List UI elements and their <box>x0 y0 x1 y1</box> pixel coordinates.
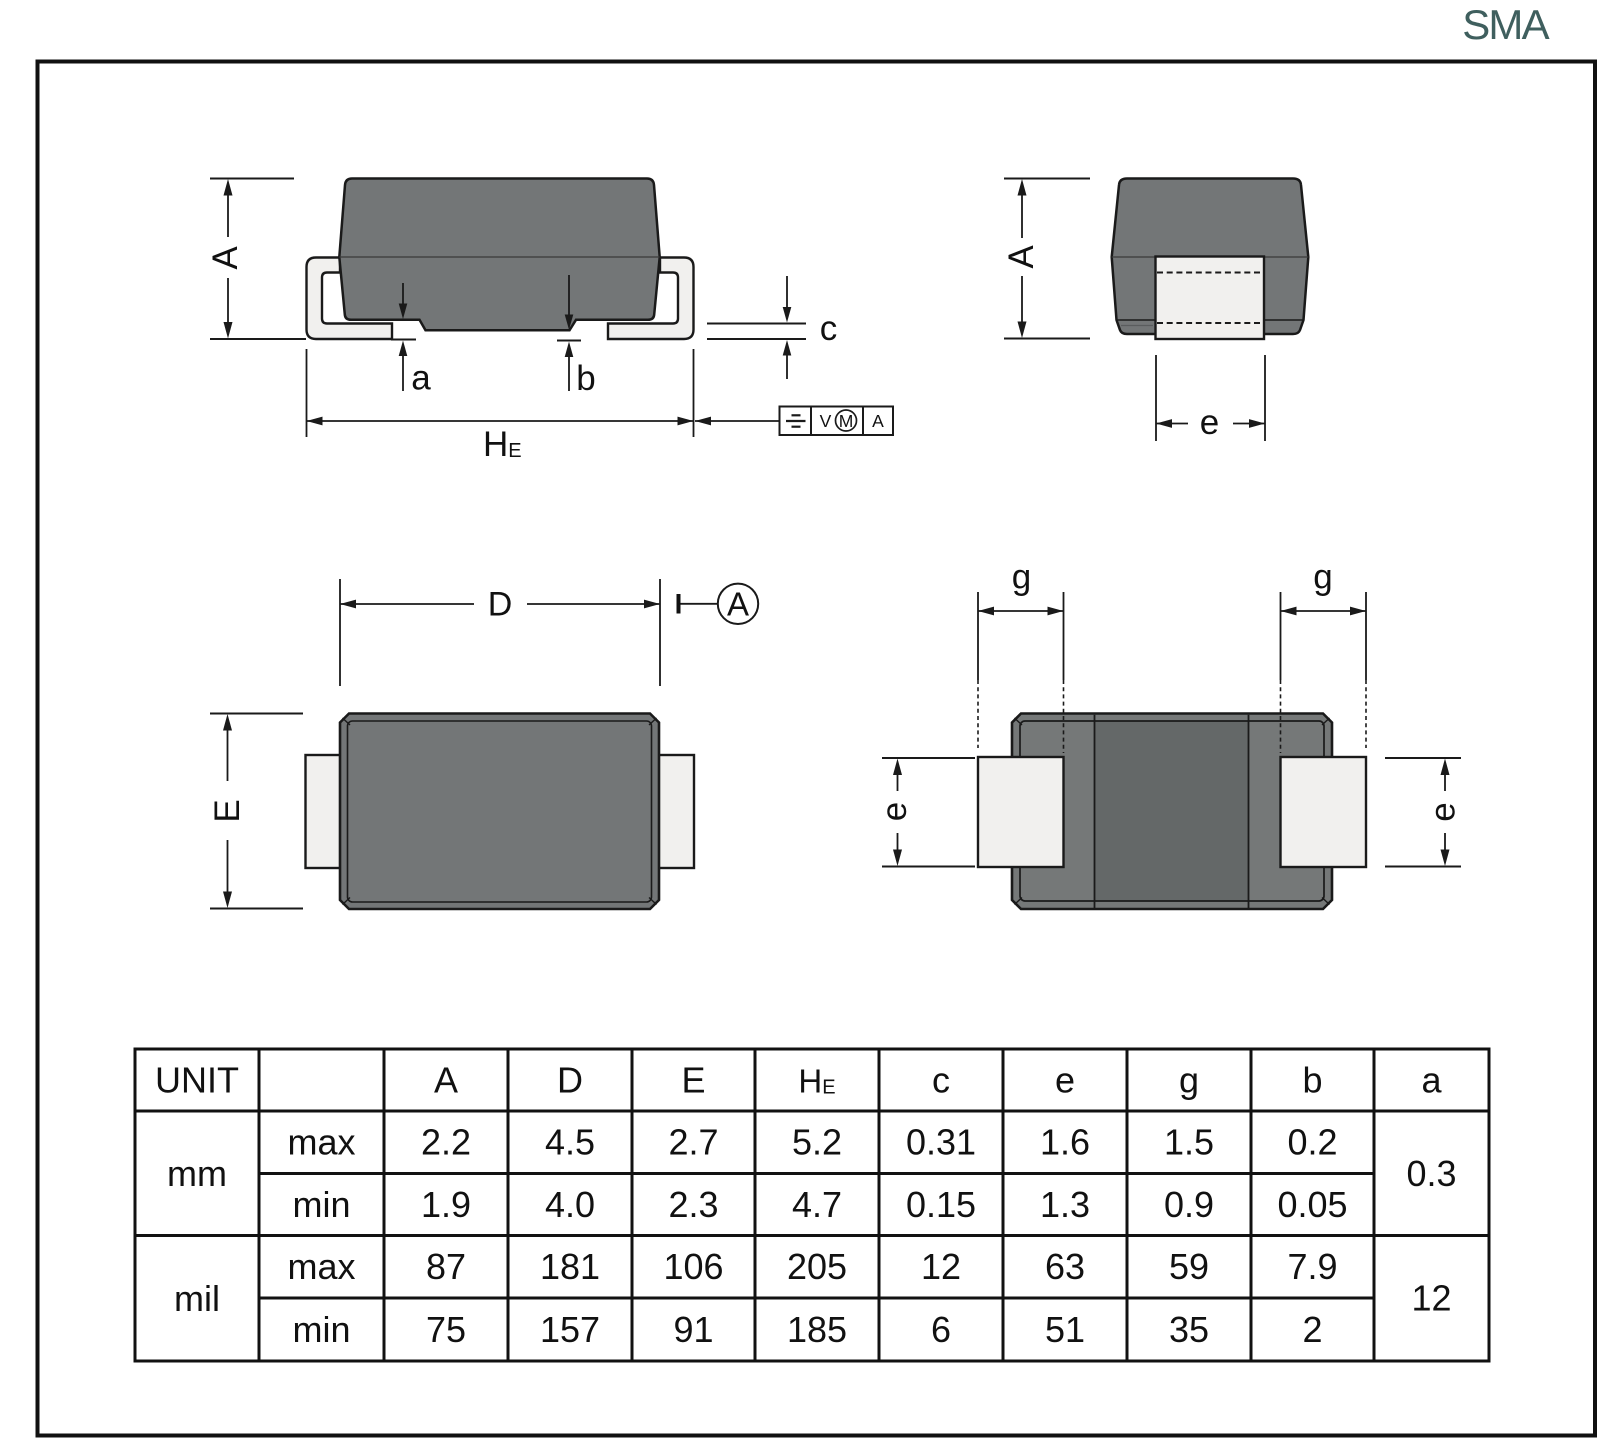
svg-text:91: 91 <box>673 1309 713 1350</box>
svg-text:b: b <box>1302 1060 1322 1101</box>
svg-text:E: E <box>208 799 247 822</box>
svg-text:7.9: 7.9 <box>1287 1246 1337 1287</box>
svg-text:c: c <box>932 1060 950 1101</box>
svg-text:0.2: 0.2 <box>1287 1122 1337 1163</box>
svg-text:e: e <box>1200 403 1219 442</box>
svg-text:g: g <box>1012 558 1031 597</box>
svg-text:2.7: 2.7 <box>668 1122 718 1163</box>
svg-text:4.5: 4.5 <box>545 1122 595 1163</box>
svg-text:1.9: 1.9 <box>421 1184 471 1225</box>
svg-text:6: 6 <box>931 1309 951 1350</box>
svg-text:e: e <box>875 802 914 821</box>
svg-text:51: 51 <box>1045 1309 1085 1350</box>
svg-text:1.3: 1.3 <box>1040 1184 1090 1225</box>
svg-text:A: A <box>727 586 749 623</box>
svg-text:0.05: 0.05 <box>1277 1184 1347 1225</box>
svg-text:0.9: 0.9 <box>1164 1184 1214 1225</box>
svg-text:c: c <box>820 309 838 348</box>
svg-text:mil: mil <box>174 1278 220 1319</box>
svg-text:max: max <box>287 1246 355 1287</box>
svg-text:V: V <box>820 411 832 431</box>
svg-text:A: A <box>872 411 884 431</box>
svg-text:4.7: 4.7 <box>792 1184 842 1225</box>
svg-text:2.3: 2.3 <box>668 1184 718 1225</box>
svg-text:a: a <box>411 359 431 398</box>
svg-text:0.31: 0.31 <box>906 1122 976 1163</box>
svg-text:59: 59 <box>1169 1246 1209 1287</box>
svg-text:5.2: 5.2 <box>792 1122 842 1163</box>
svg-text:A: A <box>1002 245 1041 269</box>
svg-text:A: A <box>206 246 245 270</box>
svg-text:185: 185 <box>787 1309 847 1350</box>
svg-text:D: D <box>488 586 513 624</box>
svg-text:35: 35 <box>1169 1309 1209 1350</box>
svg-text:4.0: 4.0 <box>545 1184 595 1225</box>
svg-text:12: 12 <box>921 1246 961 1287</box>
svg-text:g: g <box>1179 1060 1199 1101</box>
svg-text:UNIT: UNIT <box>155 1060 239 1101</box>
svg-text:D: D <box>557 1060 583 1101</box>
svg-text:g: g <box>1313 558 1332 597</box>
svg-text:63: 63 <box>1045 1246 1085 1287</box>
svg-text:a: a <box>1421 1060 1442 1101</box>
svg-text:mm: mm <box>167 1153 227 1194</box>
svg-text:max: max <box>287 1122 355 1163</box>
svg-text:M: M <box>839 411 854 431</box>
svg-text:87: 87 <box>426 1246 466 1287</box>
svg-text:106: 106 <box>663 1246 723 1287</box>
svg-text:2.2: 2.2 <box>421 1122 471 1163</box>
svg-text:0.15: 0.15 <box>906 1184 976 1225</box>
svg-text:157: 157 <box>540 1309 600 1350</box>
svg-text:E: E <box>681 1060 705 1101</box>
svg-text:min: min <box>292 1309 350 1350</box>
svg-text:SMA: SMA <box>1462 1 1549 48</box>
svg-text:75: 75 <box>426 1309 466 1350</box>
svg-text:181: 181 <box>540 1246 600 1287</box>
svg-text:e: e <box>1055 1060 1075 1101</box>
svg-text:2: 2 <box>1302 1309 1322 1350</box>
svg-text:205: 205 <box>787 1246 847 1287</box>
svg-text:12: 12 <box>1411 1278 1451 1319</box>
svg-text:b: b <box>576 359 595 398</box>
svg-text:e: e <box>1424 802 1463 821</box>
svg-text:min: min <box>292 1184 350 1225</box>
svg-text:A: A <box>434 1060 458 1101</box>
svg-text:1.6: 1.6 <box>1040 1122 1090 1163</box>
svg-text:1.5: 1.5 <box>1164 1122 1214 1163</box>
svg-text:0.3: 0.3 <box>1406 1153 1456 1194</box>
